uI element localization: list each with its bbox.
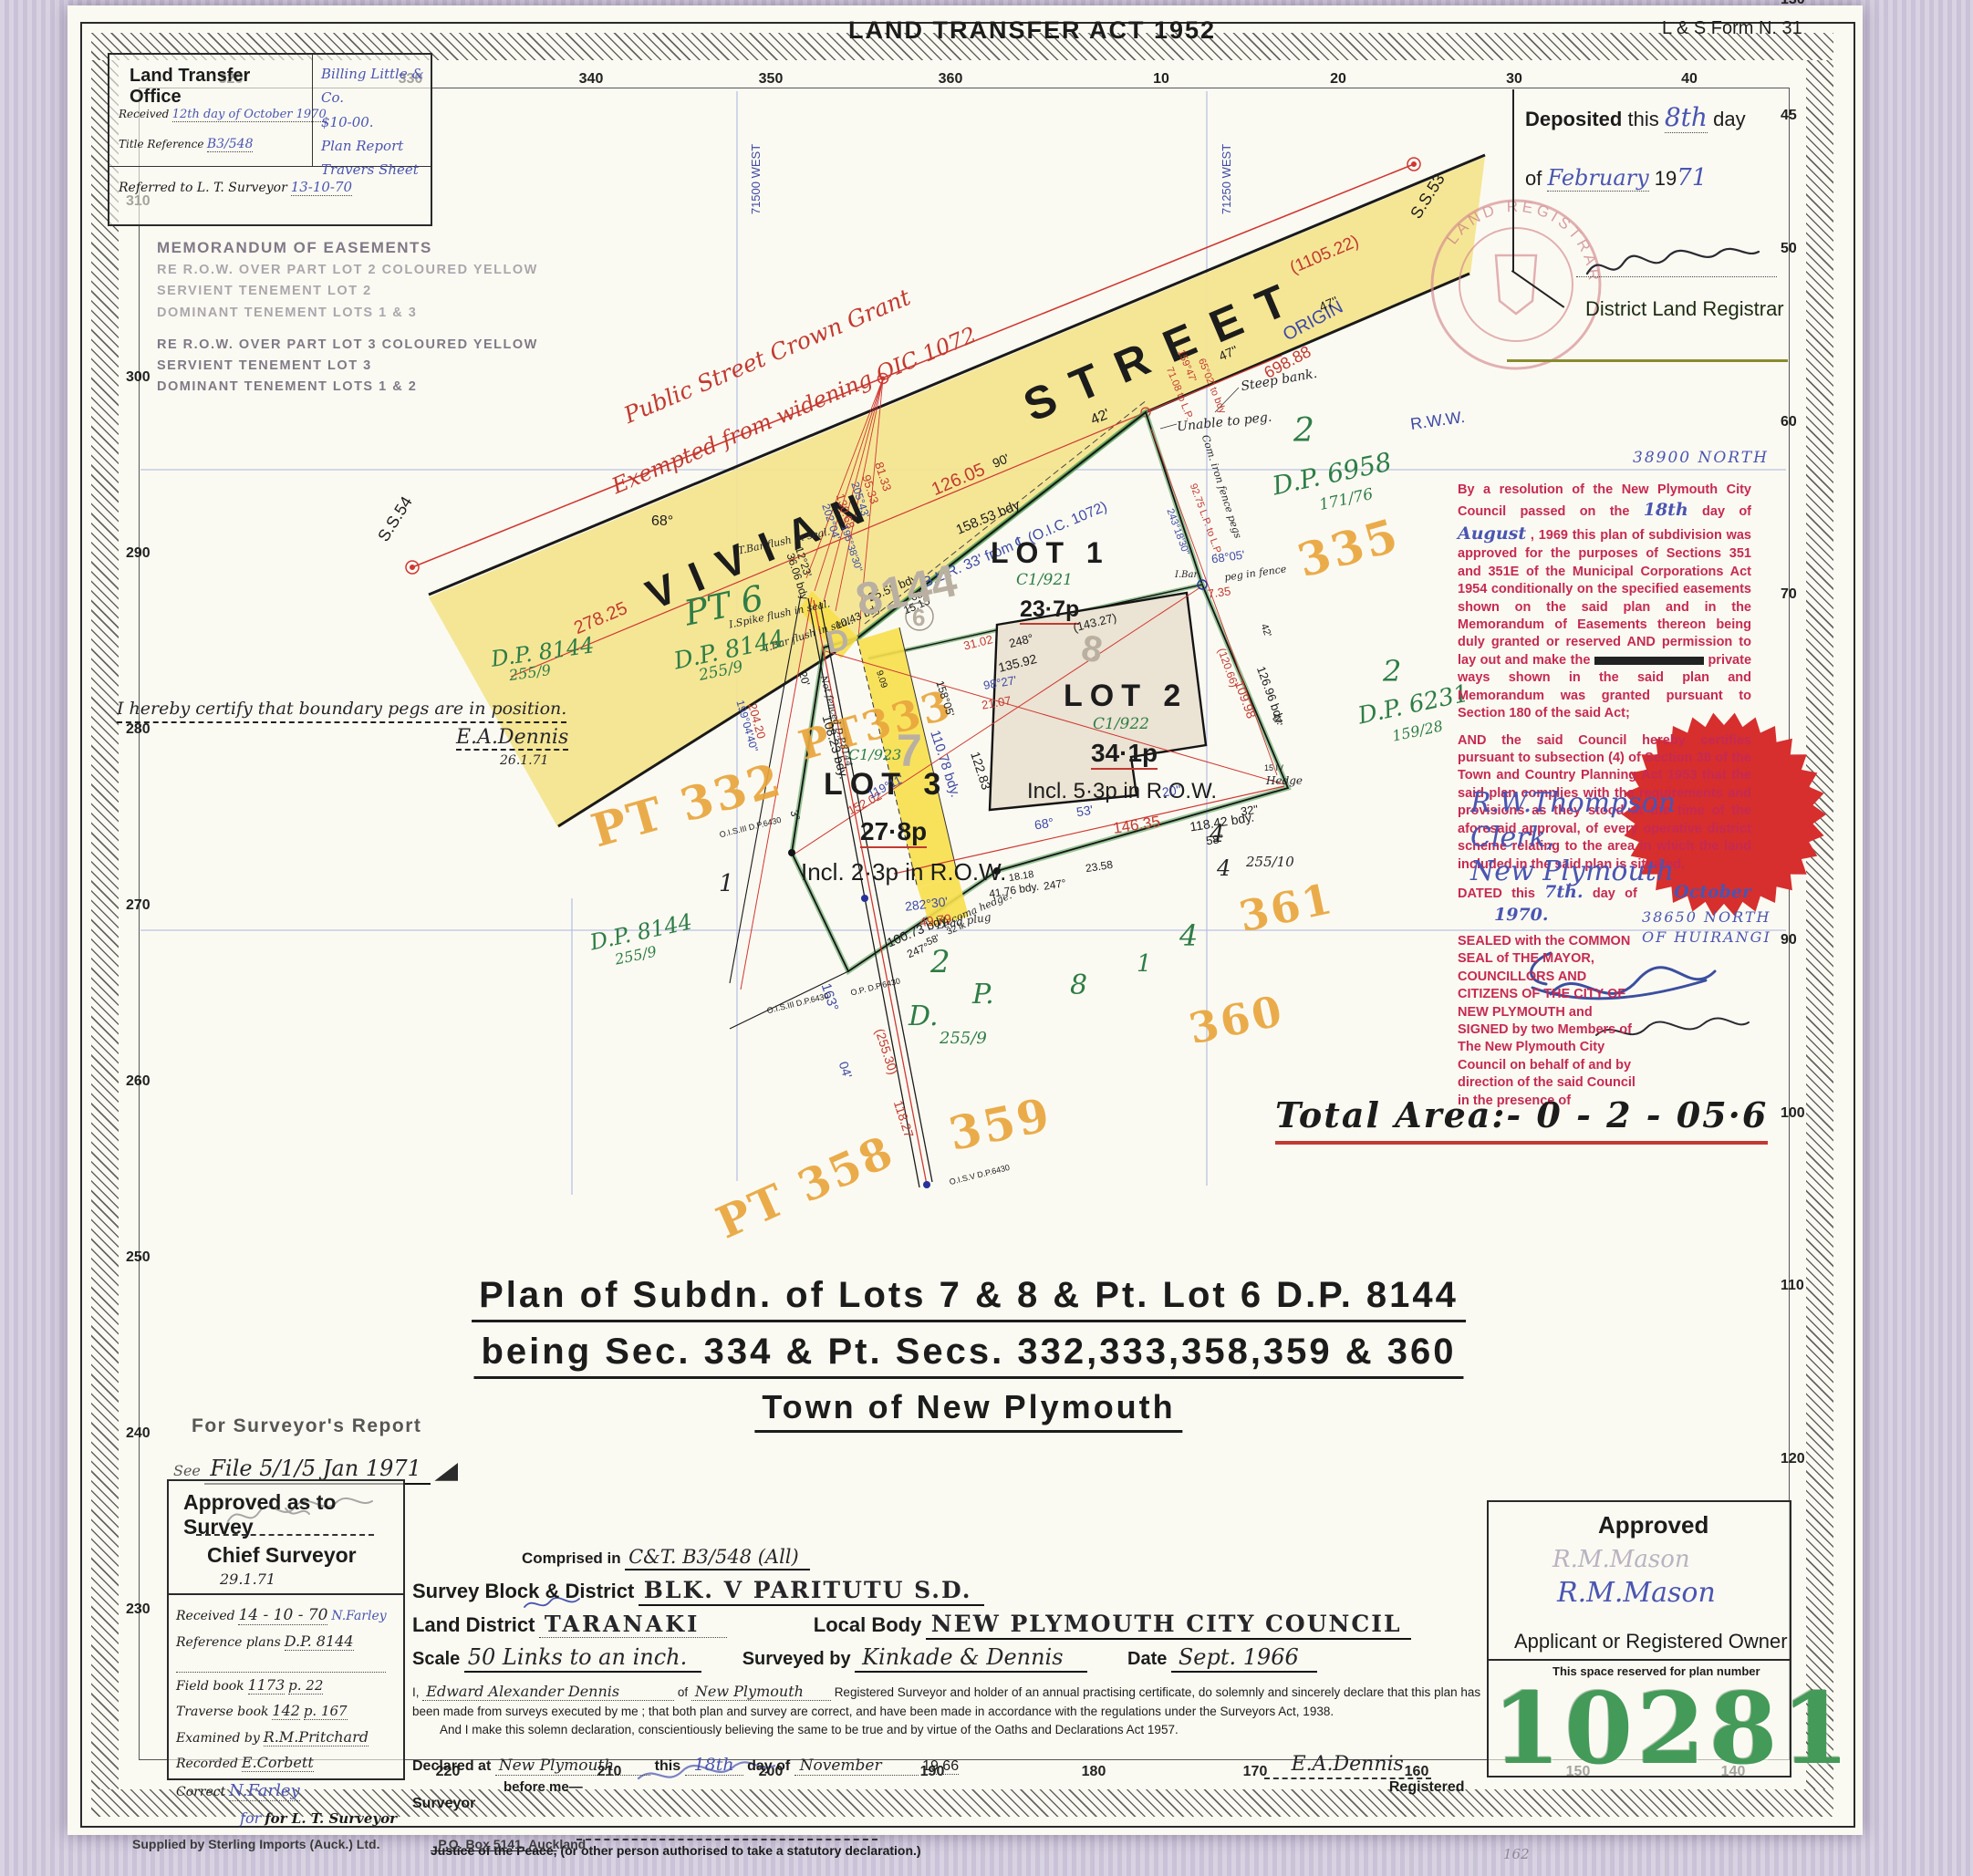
- plan-label: 15 IV: [1264, 764, 1283, 772]
- council-mid1: day of: [1702, 504, 1751, 519]
- council-sealed: SEALED with the COMMON SEAL of THE MAYOR…: [1458, 933, 1640, 1110]
- before-me: before me—: [504, 1779, 583, 1795]
- memorandum-line: [157, 324, 540, 335]
- plan-label: 68°: [1033, 815, 1054, 831]
- lto-title: Land Transfer Office: [130, 66, 303, 108]
- scanned-survey-plan: LAND TRANSFER ACT 1952 L & S Form N. 31 …: [0, 0, 1973, 1876]
- plan-title-line2: being Sec. 334 & Pt. Secs. 332,333,358,3…: [473, 1332, 1463, 1379]
- plan-label: P.: [972, 981, 994, 1009]
- traverse-page: p. 167: [304, 1703, 348, 1720]
- plan-label: D.: [909, 1003, 939, 1031]
- council-year2: 1970.: [1494, 905, 1549, 925]
- footer-po: P.O. Box 5141, Auckland: [438, 1837, 586, 1851]
- decl-place: New Plymouth: [691, 1683, 831, 1701]
- plan-label: 1: [719, 872, 734, 896]
- comprised-label: Comprised in: [522, 1550, 621, 1567]
- council-p1-end: shown in the said plan and Memorandum wa…: [1458, 670, 1751, 720]
- plan-label: 49.79: [919, 912, 951, 928]
- memorandum-line: RE R.O.W. OVER PART LOT 2 COLOURED YELLO…: [157, 260, 540, 281]
- surveyed-by-label: Surveyed by: [742, 1649, 851, 1669]
- lto-titleref-label: Title Reference: [119, 138, 204, 150]
- north-ref-2: 38650 NORTH OF HUIRANGI: [1642, 907, 1771, 948]
- lto-handwritten-notes: Billing Little & Co.$10-00.Plan ReportTr…: [321, 62, 429, 181]
- memorandum-line: DOMINANT TENEMENT LOTS 1 & 3: [157, 303, 540, 324]
- deposited-year-hand: 71: [1677, 164, 1707, 192]
- plan-number-stamp: 10281: [1492, 1672, 1854, 1787]
- footer-supplied: Supplied by Sterling Imports (Auck.) Ltd…: [132, 1837, 379, 1851]
- rec-value: 14 - 10 - 70: [238, 1606, 327, 1625]
- scale-label: Scale: [412, 1649, 460, 1669]
- land-district-value: TARANAKI: [539, 1611, 727, 1638]
- refplans-value: D.P. 8144: [285, 1632, 354, 1651]
- plan-label: 71250 WEST: [1220, 144, 1232, 214]
- declared-this: this: [655, 1758, 680, 1774]
- deposited-box: Deposited this 8th day of February 1971 …: [1512, 89, 1788, 365]
- surveyed-by-value: Kinkade & Dennis: [855, 1644, 1086, 1673]
- lto-note: Billing Little & Co.: [321, 62, 429, 110]
- decl-pre: I,: [412, 1685, 420, 1699]
- council-p1-rest: this plan of subdivision was approved fo…: [1458, 528, 1751, 668]
- declaration-paragraph: I, Edward Alexander Dennis of New Plymou…: [412, 1681, 1489, 1740]
- decl-body3: And I make this solemn declaration, cons…: [440, 1721, 1489, 1739]
- land-transfer-office-box: Land Transfer Office Received 12th day o…: [108, 53, 432, 226]
- council-month1: August: [1458, 523, 1526, 544]
- plan-label: 2: [1383, 657, 1401, 686]
- refplans-label: Reference plans: [176, 1635, 281, 1650]
- plan-label: 27·8p: [860, 819, 927, 848]
- examined-value: R.M.Pritchard: [264, 1728, 369, 1746]
- council-day1: 18th: [1644, 500, 1688, 520]
- certify-date: 26.1.71: [500, 753, 548, 768]
- local-body-label: Local Body: [814, 1613, 922, 1636]
- memorandum-title: MEMORANDUM OF EASEMENTS: [157, 235, 540, 260]
- plan-label: 4: [1217, 857, 1231, 879]
- plan-label: 34·1p: [1091, 741, 1158, 770]
- deposited-of: of: [1525, 167, 1542, 190]
- certify-text: I hereby certify that boundary pegs are …: [117, 699, 566, 723]
- plan-label: 20': [797, 670, 812, 687]
- decl-name: Edward Alexander Dennis: [422, 1683, 674, 1701]
- council-year1: , 1969: [1531, 528, 1568, 543]
- clerk-sig-role: Clerk,: [1470, 821, 1676, 855]
- chief-surveyor-date: 29.1.71: [220, 1570, 275, 1588]
- plan-label: 68°: [651, 514, 673, 529]
- aats-title: Approved as to Survey: [183, 1490, 403, 1539]
- deposited-day-word: day: [1713, 108, 1745, 130]
- lto-referred-label: Referred to L. T. Surveyor: [119, 181, 287, 195]
- plan-label: I.Bar: [1175, 571, 1198, 580]
- plan-label: 255/10: [1246, 855, 1294, 869]
- fieldbook-page: p. 22: [288, 1677, 323, 1695]
- deposited-word: Deposited: [1525, 108, 1622, 130]
- plan-label: C1/922: [1093, 717, 1149, 732]
- clerk-signature: R.W.Thompson Clerk, New Plymouth: [1470, 786, 1676, 889]
- clerk-sig-place: New Plymouth: [1470, 855, 1676, 889]
- comprised-value: C&T. B3/548 (All): [625, 1546, 810, 1570]
- plan-label: 20'': [1161, 783, 1182, 798]
- approved-sig-pencil: R.M.Mason: [1552, 1546, 1690, 1573]
- memorandum-of-easements: MEMORANDUM OF EASEMENTSRE R.O.W. OVER PA…: [157, 235, 540, 398]
- for-lt-surveyor: for L. T. Surveyor: [265, 1810, 397, 1827]
- declared-at-value: New Plymouth: [495, 1757, 650, 1776]
- lto-note: $10-00.: [321, 110, 429, 134]
- plan-label: Hedge: [1266, 775, 1303, 786]
- scale-value: 50 Links to an inch.: [464, 1644, 702, 1673]
- plan-label: 8: [1070, 972, 1087, 1000]
- lto-referred-value: 13-10-70: [291, 179, 352, 196]
- plan-label: Incl. 5·3p in R.O.W.: [1027, 781, 1217, 803]
- approved-title: Approved: [1598, 1511, 1708, 1539]
- clerk-sig-name: R.W.Thompson: [1470, 786, 1676, 821]
- correct-label: Correct: [176, 1785, 225, 1799]
- block-value: BLK. V PARITUTU S.D.: [639, 1577, 985, 1606]
- plan-label: 32'': [1240, 803, 1259, 818]
- traverse-label: Traverse book: [176, 1705, 269, 1719]
- see-label: See: [173, 1462, 201, 1479]
- declared-day: 18th: [685, 1755, 743, 1776]
- block-label: Survey Block & District: [412, 1580, 634, 1602]
- fieldbook-label: Field book: [176, 1679, 244, 1694]
- plan-label: LOT 2: [1064, 680, 1188, 711]
- deposited-day: 8th: [1665, 102, 1708, 133]
- declared-at-label: Declared at: [412, 1758, 491, 1774]
- plan-label: 4: [1179, 921, 1198, 950]
- plan-title-line1: Plan of Subdn. of Lots 7 & 8 & Pt. Lot 6…: [472, 1275, 1466, 1322]
- north-ref-2a: 38650 NORTH: [1642, 907, 1771, 928]
- memorandum-line: DOMINANT TENEMENT LOTS 1 & 2: [157, 377, 540, 398]
- plan-label: 58°: [1205, 833, 1224, 847]
- north-ref-1: 38900 NORTH: [1633, 449, 1769, 467]
- land-district-label: Land District: [412, 1613, 535, 1636]
- chief-surveyor-label: Chief Surveyor: [207, 1543, 357, 1568]
- approved-as-to-survey-box: Approved as to Survey Chief Surveyor 29.…: [167, 1479, 405, 1780]
- applicant-caption: Applicant or Registered Owner: [1514, 1630, 1788, 1653]
- plan-label: 247°: [1043, 877, 1066, 892]
- plan-label: LOT 1: [991, 538, 1110, 567]
- plan-label: 71500 WEST: [750, 144, 762, 214]
- lto-received-value: 12th day of October 1970: [172, 108, 327, 122]
- decl-of: of: [678, 1685, 688, 1699]
- lto-titleref-value: B3/548: [207, 137, 254, 152]
- local-body-value: NEW PLYMOUTH CITY COUNCIL: [926, 1611, 1411, 1640]
- memorandum-line: SERVIENT TENEMENT LOT 3: [157, 356, 540, 377]
- registrar-caption: District Land Registrar: [1585, 297, 1784, 321]
- recorded-label: Recorded: [176, 1757, 238, 1771]
- approved-sig-ink: R.M.Mason: [1557, 1577, 1716, 1609]
- plan-label: 255/9: [940, 1031, 987, 1047]
- memorandum-line: RE R.O.W. OVER PART LOT 3 COLOURED YELLO…: [157, 335, 540, 356]
- plan-label: 53': [1075, 803, 1094, 819]
- deposited-year-print: 19: [1655, 167, 1677, 190]
- surveyors-report-title: For Surveyor's Report: [192, 1415, 421, 1437]
- footer-pencil-mark: 162: [1503, 1846, 1530, 1862]
- date-value: Sept. 1966: [1171, 1644, 1317, 1673]
- deposited-this: this: [1627, 108, 1658, 130]
- examined-label: Examined by: [176, 1731, 260, 1746]
- fieldbook-value: 1173: [248, 1676, 286, 1695]
- struck-out-text: [1594, 657, 1704, 665]
- date-label: Date: [1127, 1649, 1167, 1669]
- traverse-value: 142: [272, 1702, 300, 1720]
- jp-rest: (or other person authorised to take a st…: [557, 1843, 921, 1858]
- plan-label: 7.35: [1207, 585, 1231, 599]
- plan-label: C1/921: [1016, 573, 1073, 588]
- deposited-month: February: [1547, 165, 1648, 192]
- plan-label: Incl. 2·3p in R.O.W.: [801, 860, 1006, 884]
- smudge: [434, 1463, 458, 1481]
- approved-owner-box: Approved R.M.Mason R.M.Mason Applicant o…: [1487, 1500, 1791, 1778]
- plan-label: 2: [930, 947, 950, 978]
- rec-init: N.Farley: [331, 1609, 386, 1623]
- certify-signature: E.A.Dennis: [456, 726, 568, 751]
- recorded-value: E.Corbett: [242, 1754, 314, 1772]
- council-month2: October: [1674, 882, 1751, 902]
- plan-title-line3: Town of New Plymouth: [754, 1388, 1182, 1433]
- total-area-text: Total Area:- 0 - 2 - 05·6: [1275, 1094, 1768, 1145]
- plan-label: 23·7p: [1020, 598, 1079, 625]
- plan-label: 1: [1137, 952, 1152, 976]
- lto-note: Plan Report: [321, 134, 429, 158]
- north-ref-2b: OF HUIRANGI: [1642, 928, 1771, 948]
- surveyor-signature: E.A.Dennis: [1264, 1753, 1431, 1779]
- plan-label: 6: [912, 606, 925, 629]
- declared-month: November: [794, 1757, 919, 1776]
- memorandum-line: SERVIENT TENEMENT LOT 2: [157, 281, 540, 302]
- declared-dayof: day of: [747, 1758, 790, 1774]
- lto-received-label: Received: [119, 108, 169, 120]
- declared-year: 19 66: [922, 1758, 959, 1775]
- decl-body1: Registered Surveyor and holder of an ann…: [835, 1685, 1431, 1699]
- correct-value: N.Farley: [229, 1781, 300, 1801]
- plan-label: 2: [1293, 415, 1314, 448]
- rec-label: Received: [176, 1609, 235, 1623]
